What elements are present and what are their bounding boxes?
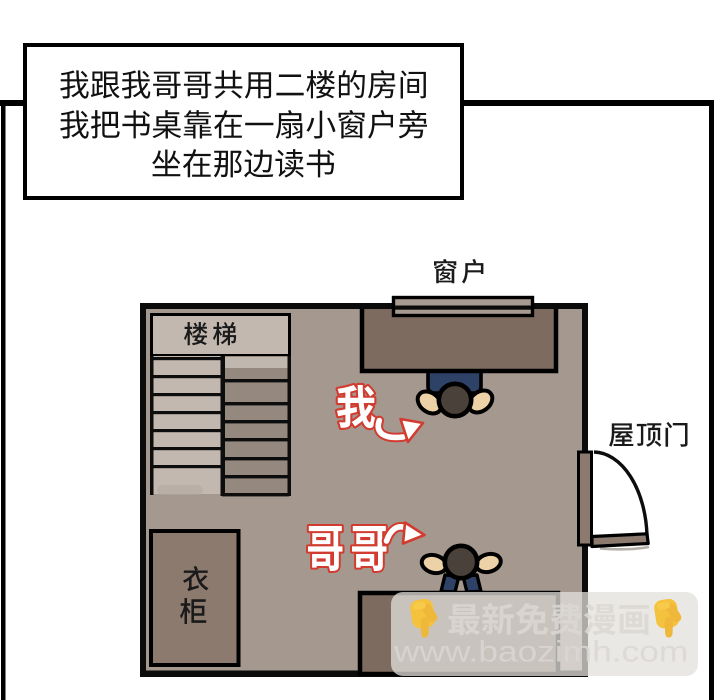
svg-text:www.baozimh.com: www.baozimh.com xyxy=(393,634,688,668)
